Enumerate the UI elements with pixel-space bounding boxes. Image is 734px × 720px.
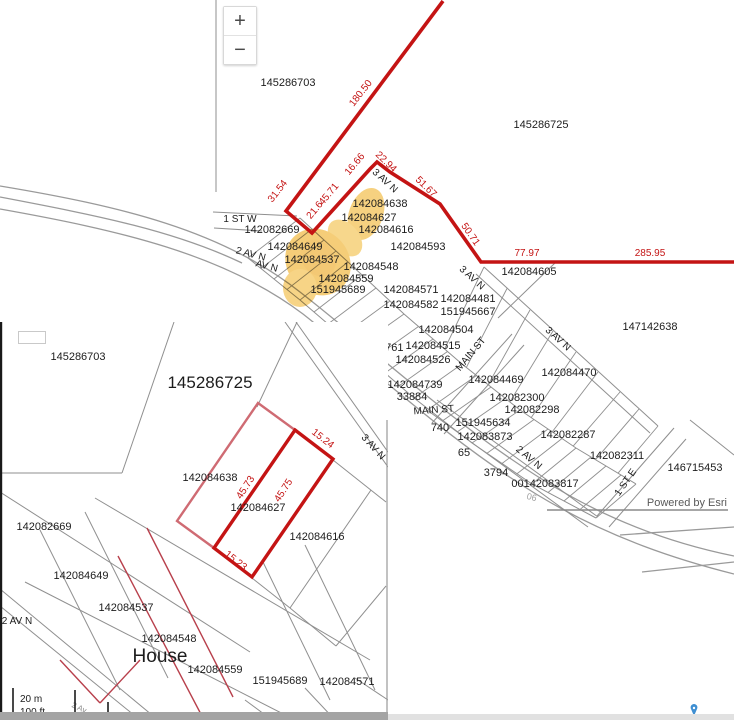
esri-attribution: Powered by Esri [647, 497, 727, 509]
parcel-label: 147142638 [622, 321, 677, 333]
inset-measurement-label: 45.75 [272, 477, 295, 504]
parcel-label: 142082669 [244, 224, 299, 236]
parcel-label: 65 [458, 447, 470, 459]
inset-parcel-label: 145286725 [167, 373, 252, 392]
measurement-label: 285.95 [635, 248, 666, 259]
inset-parcel-label: 142084559 [187, 664, 242, 676]
street-label: 1 ST E [613, 467, 640, 498]
parcel-label: 142084537 [284, 254, 339, 266]
parcel-label: 142084548 [343, 261, 398, 273]
inset-street-label: 2 AV N [2, 616, 32, 627]
inset-parcel-label: 142084638 [182, 472, 237, 484]
parcel-label: 142084470 [541, 367, 596, 379]
parcel-label: 142084638 [352, 198, 407, 210]
parcel-label: 33884 [397, 391, 428, 403]
parcel-label: 142084515 [405, 340, 460, 352]
parcel-label: 142084481 [440, 293, 495, 305]
inset-street-label: 3 AV N [359, 432, 388, 462]
bottom-bar-right [388, 714, 734, 720]
inset-parcel-label: 142084616 [289, 531, 344, 543]
parcel-label: 142084571 [383, 284, 438, 296]
parcel-label: 151945634 [455, 417, 510, 429]
zoom-in-button[interactable]: + [224, 7, 256, 36]
inset-parcel-label: 142084571 [319, 676, 374, 688]
inset-measurement-label: 15.24 [309, 427, 336, 451]
street-label: AV N [254, 258, 279, 274]
parcel-label: 06 [526, 491, 538, 503]
parcel-label: 145286725 [513, 119, 568, 131]
inset-parcel-label: 142084649 [53, 570, 108, 582]
inset-map-canvas[interactable]: 3 AV N2 AV N1452867031452867251420846381… [0, 322, 388, 720]
parcel-label: 142084582 [383, 299, 438, 311]
parcel-label: 142084649 [267, 241, 322, 253]
parcel-label: 142082287 [540, 429, 595, 441]
measurement-label: 77.97 [514, 248, 539, 259]
parcel-label: 142082298 [504, 404, 559, 416]
parcel-label: 142082300 [489, 392, 544, 404]
scale-bar-metric: 20 m [20, 694, 42, 705]
parcel-label: 142084504 [418, 324, 473, 336]
parcel-label: 142084627 [341, 212, 396, 224]
zoom-controls: + − [223, 6, 257, 65]
parcel-label: 151945689 [310, 284, 365, 296]
inset-parcel-label: 142082669 [16, 521, 71, 533]
parcel-label: 142084605 [501, 266, 556, 278]
map-application: 1 ST W2 AV NAV N3 AV N3 AV N3 AV NMAIN S… [0, 0, 734, 720]
inset-map[interactable]: 3 AV N2 AV N1452867031452867251420846381… [0, 322, 388, 720]
parcel-label: 146715453 [667, 462, 722, 474]
inset-parcel-label: 142084548 [141, 633, 196, 645]
street-label: 3 AV N [457, 264, 487, 293]
street-label: 2 AV N [513, 444, 543, 472]
measurement-label: 180.50 [347, 78, 375, 109]
inset-parcel-label: 151945689 [252, 675, 307, 687]
parcel-label: 740 [431, 422, 449, 434]
parcel-label: 142084616 [358, 224, 413, 236]
parcel-label: 3794 [484, 467, 508, 479]
zoom-out-button[interactable]: − [224, 36, 256, 64]
inset-parcel-label: House [133, 646, 188, 667]
parcel-label: 151945667 [440, 306, 495, 318]
parcel-label: 142083873 [457, 431, 512, 443]
parcel-label: 142084469 [468, 374, 523, 386]
inset-parcel-label: 142084537 [98, 602, 153, 614]
inset-parcel-label: 142084627 [230, 502, 285, 514]
parcel-label: 142084526 [395, 354, 450, 366]
measurement-label: 31.54 [266, 178, 290, 205]
parcel-label: 142084593 [390, 241, 445, 253]
street-label: MAIN ST [413, 404, 454, 418]
parcel-label: 142084739 [387, 379, 442, 391]
parcel-label: 145286703 [260, 77, 315, 89]
parcel-label: 00142083817 [511, 478, 578, 490]
inset-parcel-label: 145286703 [50, 351, 105, 363]
parcel-label: 142082311 [590, 450, 644, 462]
bottom-bar-left [0, 712, 388, 720]
inset-corner-box [18, 331, 46, 344]
